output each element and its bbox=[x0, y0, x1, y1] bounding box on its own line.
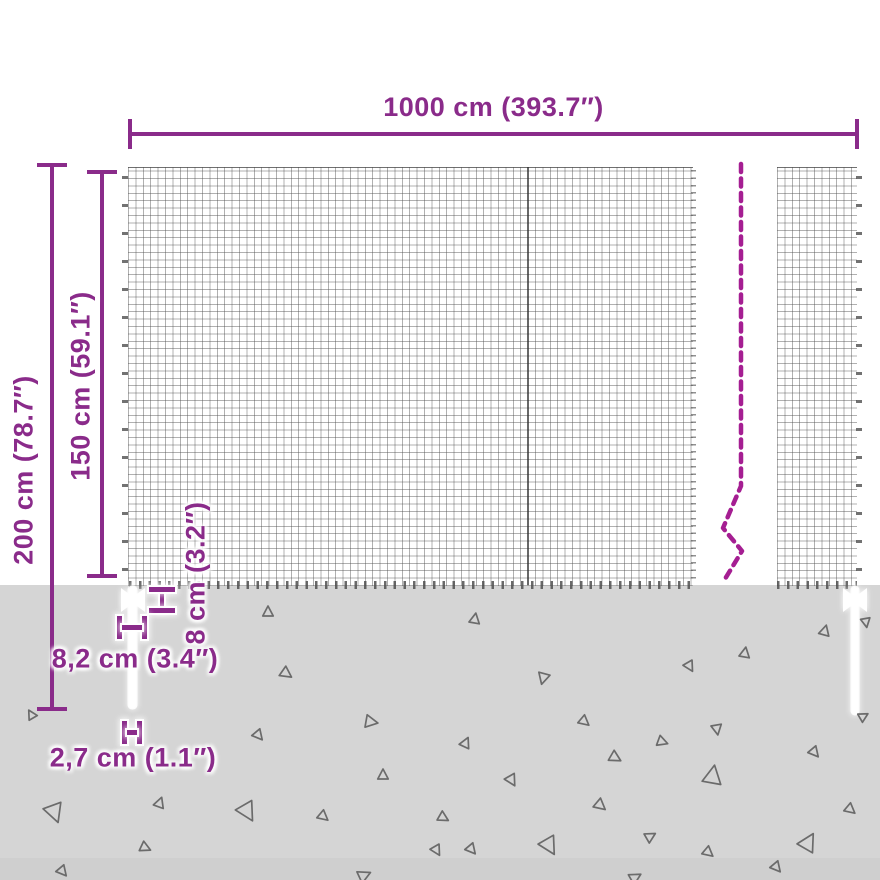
post-width-marker-right-bar bbox=[137, 721, 142, 744]
total-width-label: 1000 cm (393.7″) bbox=[130, 92, 857, 123]
anchor-width-marker-right-bar bbox=[142, 616, 147, 639]
fence-dimension-diagram: 1000 cm (393.7″) 200 cm (78.7″) 150 cm (… bbox=[0, 0, 880, 880]
mesh-bottom-loops-right bbox=[777, 581, 857, 589]
total-height-dimension-line bbox=[50, 163, 54, 711]
post-width-label: 2,7 cm (1.1″) bbox=[50, 743, 217, 774]
width-dimension-tick-right bbox=[855, 119, 859, 149]
mesh-height-tick-bottom bbox=[87, 574, 117, 578]
mesh-bottom-loops-main bbox=[129, 581, 693, 589]
ground-bottom-band bbox=[0, 858, 880, 880]
width-dimension-tick-left bbox=[128, 119, 132, 149]
anchor-height-marker-bottom-bar bbox=[149, 608, 175, 613]
mesh-panel-right bbox=[777, 167, 857, 586]
mesh-panel-main bbox=[128, 167, 693, 586]
anchor-width-label: 8,2 cm (3.4″) bbox=[52, 644, 219, 675]
mesh-right-edge-hooks bbox=[856, 176, 862, 580]
mesh-height-label: 150 cm (59.1″) bbox=[66, 291, 97, 481]
mesh-height-tick-top bbox=[87, 170, 117, 174]
mesh-middle-wire bbox=[527, 167, 529, 585]
right-post-underground bbox=[852, 587, 858, 714]
mesh-height-dimension-line bbox=[100, 170, 104, 578]
anchor-height-label: 8 cm (3.2″) bbox=[181, 502, 212, 645]
anchor-height-marker-top-bar bbox=[149, 587, 175, 592]
width-dimension-line bbox=[130, 132, 857, 136]
total-height-tick-bottom bbox=[37, 707, 67, 711]
mesh-left-edge-hooks bbox=[122, 176, 128, 580]
mesh-cut-edge-wires bbox=[691, 170, 696, 584]
total-height-label: 200 cm (78.7″) bbox=[9, 375, 40, 565]
mesh-break-dashed-line bbox=[723, 164, 742, 579]
anchor-width-marker-line bbox=[122, 625, 142, 630]
total-height-tick-top bbox=[37, 163, 67, 167]
post-width-marker-line bbox=[127, 730, 137, 735]
